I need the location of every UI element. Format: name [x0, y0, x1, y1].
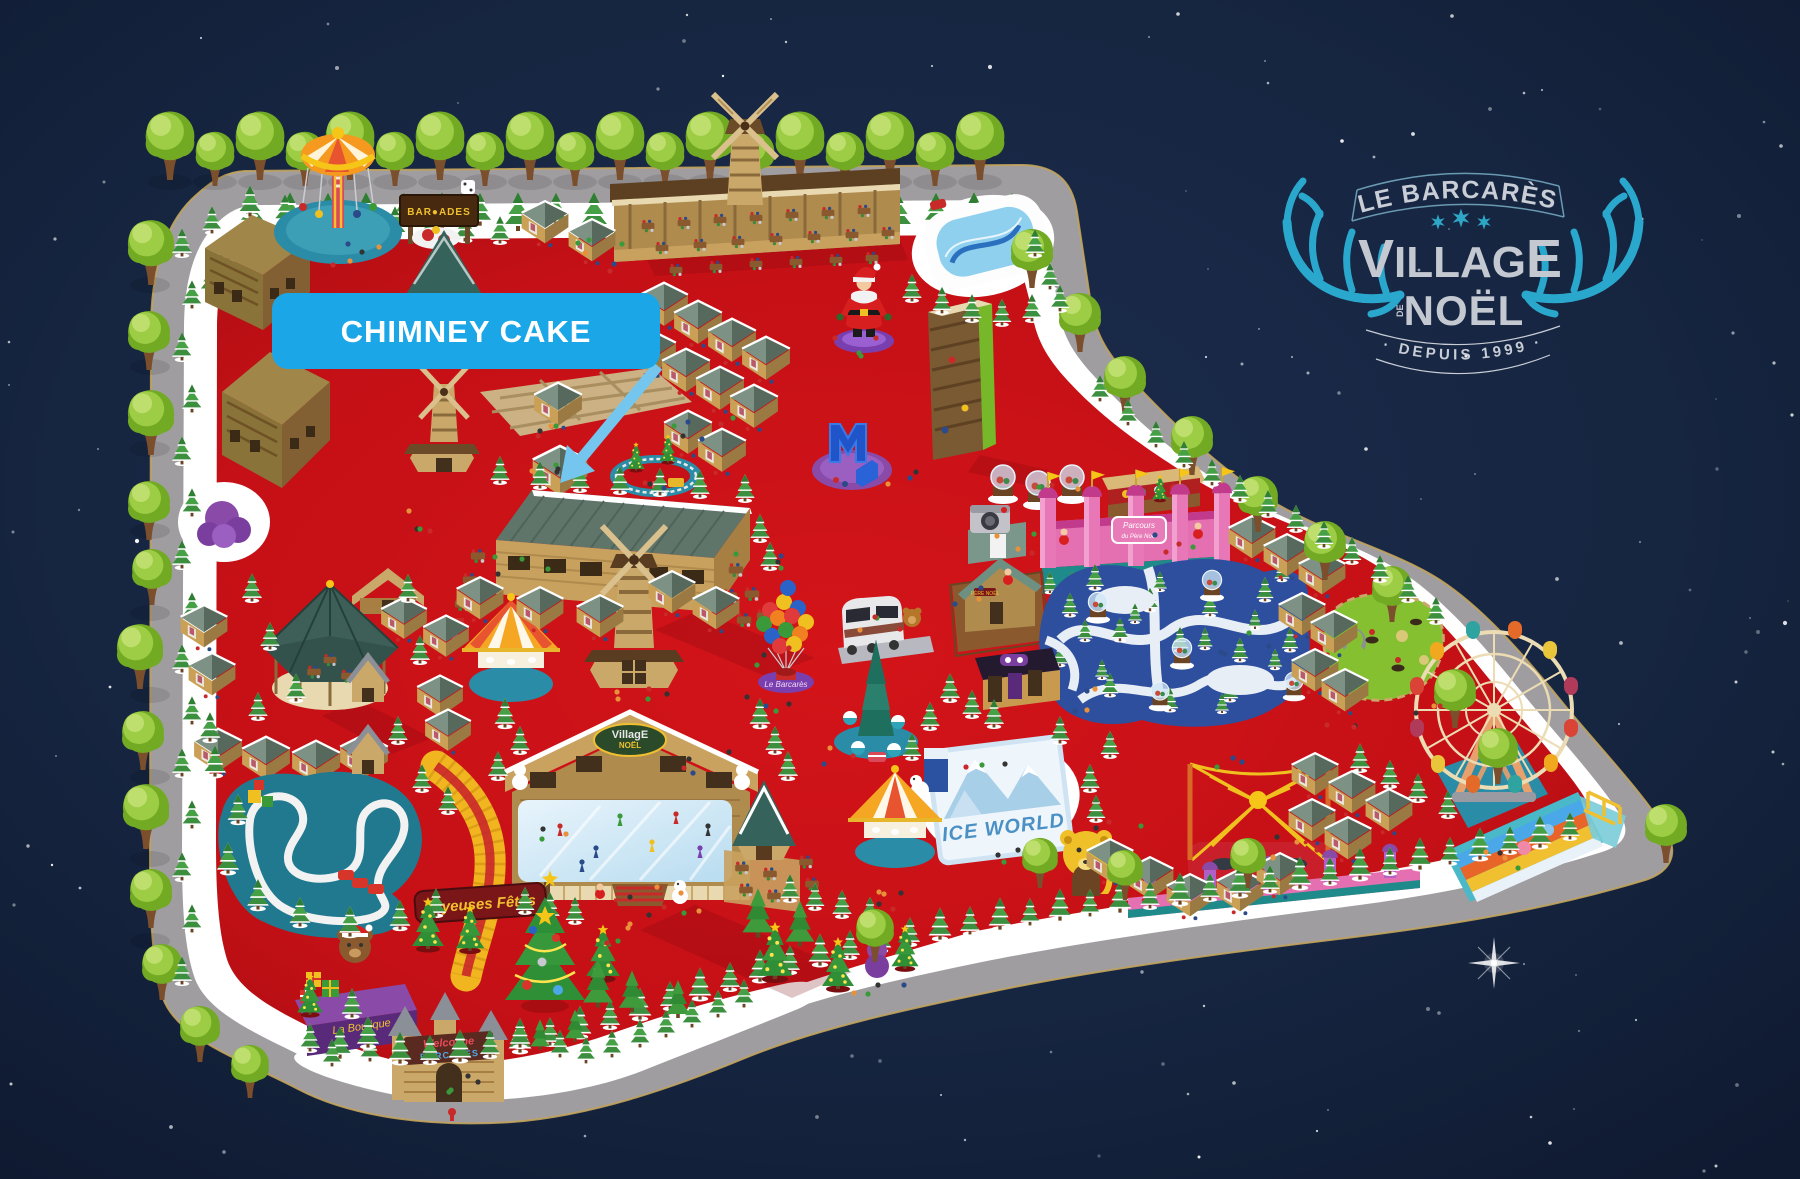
- svg-text:CHIMNEY CAKE: CHIMNEY CAKE: [341, 314, 592, 349]
- svg-text:Parcours: Parcours: [1123, 521, 1155, 530]
- svg-text:VILLAGE: VILLAGE: [1358, 229, 1562, 289]
- svg-text:BAR●ADES: BAR●ADES: [407, 207, 471, 218]
- svg-text:PÈRE NOËL: PÈRE NOËL: [971, 590, 1000, 597]
- svg-text:VillagE: VillagE: [612, 729, 648, 741]
- svg-text:NOËL: NOËL: [1404, 287, 1525, 334]
- svg-text:du Père Noël: du Père Noël: [1121, 534, 1157, 540]
- svg-text:NOËL: NOËL: [619, 741, 641, 750]
- svg-text:Le Barcarès: Le Barcarès: [764, 680, 807, 689]
